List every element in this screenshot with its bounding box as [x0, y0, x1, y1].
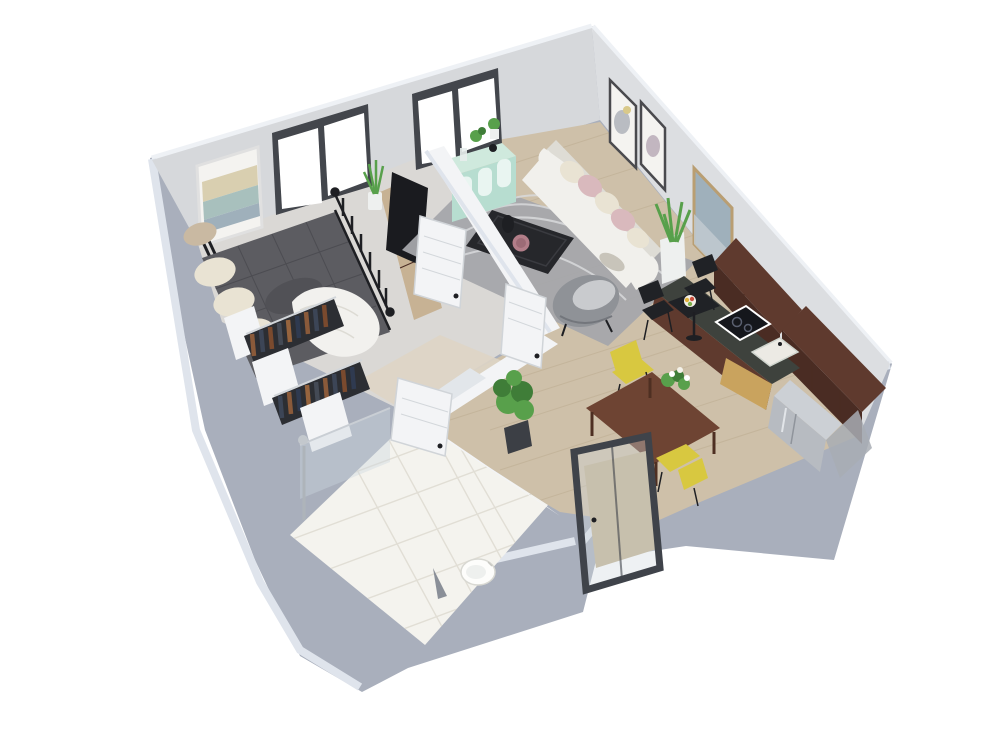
entry-door-handle: [592, 518, 597, 523]
black-vase: [489, 144, 497, 152]
bedroom-door-open: [414, 216, 466, 308]
glass-entry-door: [574, 436, 660, 590]
entry: [574, 436, 660, 590]
door-handle: [535, 354, 540, 359]
decor-bottle: [502, 215, 514, 233]
floor-plan-render: [0, 0, 1000, 750]
floor-plan-canvas: [0, 0, 1000, 750]
door-handle: [454, 294, 459, 299]
door-handle: [438, 444, 443, 449]
faucet: [778, 342, 782, 346]
shower-head: [298, 435, 308, 445]
sill-plant: [488, 118, 500, 130]
hall-door-open: [501, 284, 546, 368]
glass-cup: [460, 148, 467, 161]
toilet: [461, 559, 495, 585]
